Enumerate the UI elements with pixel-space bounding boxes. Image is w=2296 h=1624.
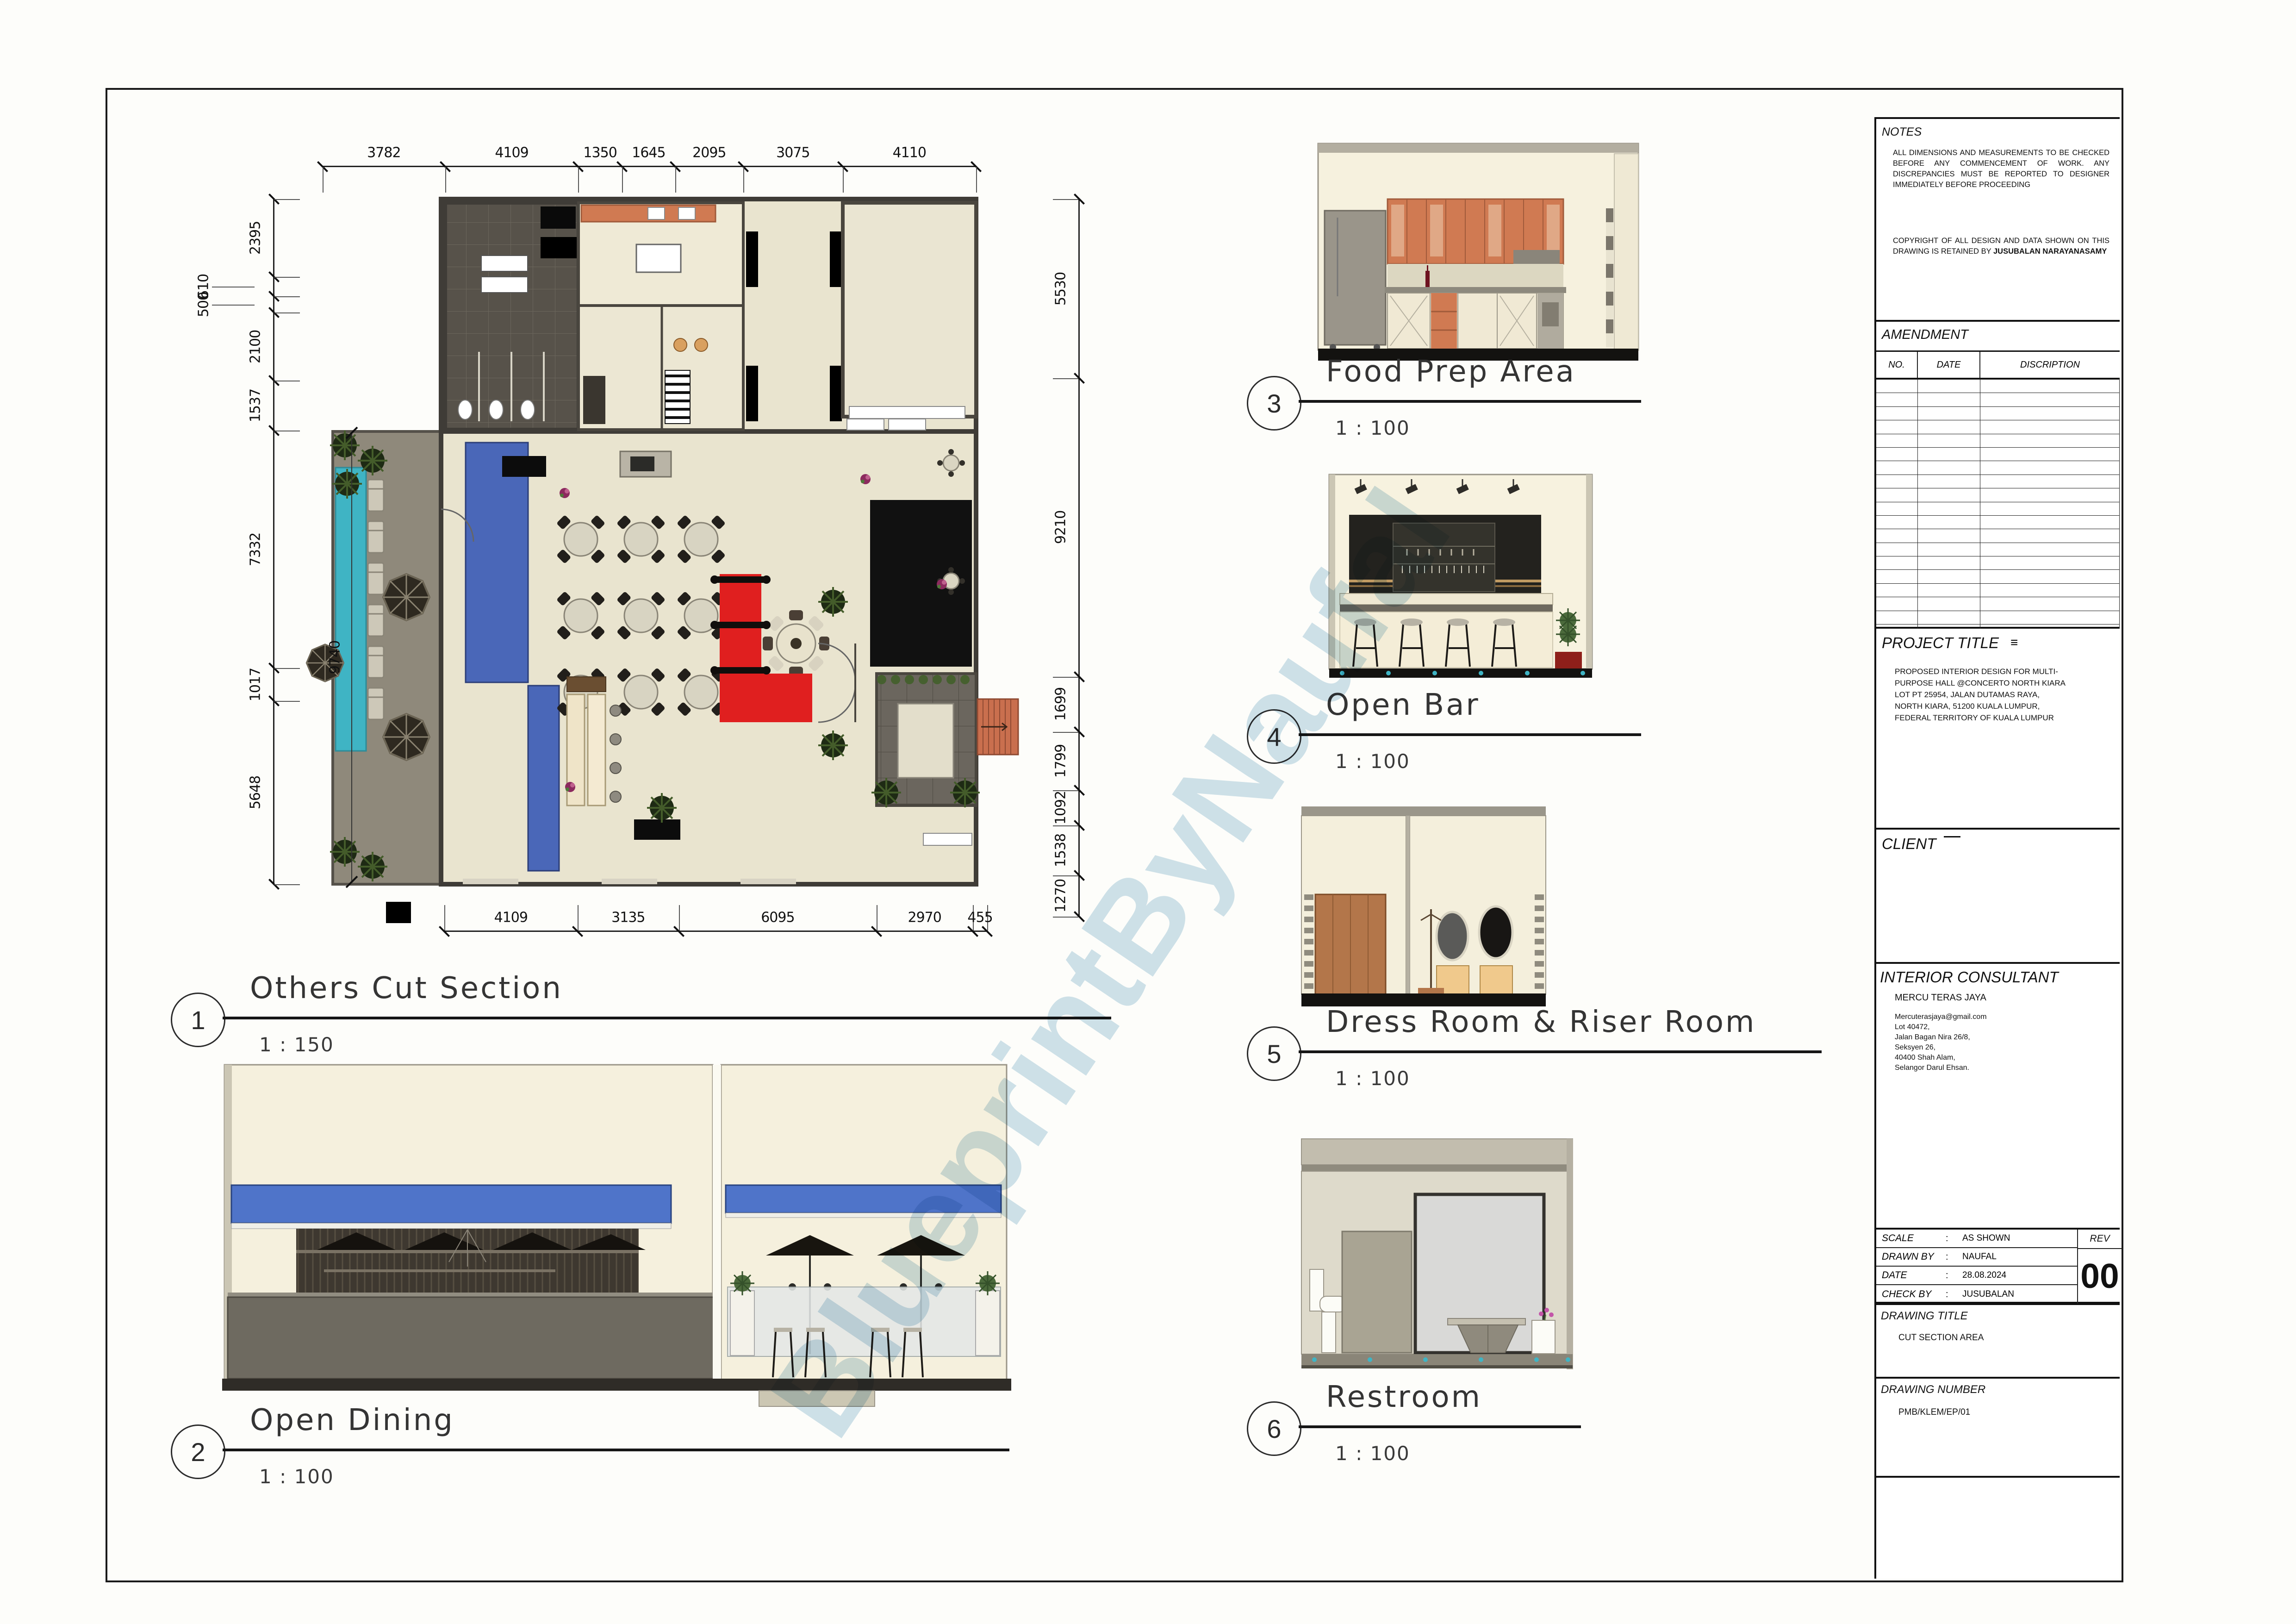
amendment-empty-rows [1876,379,2120,637]
dim-graphic [274,277,300,278]
dim-label: 9210 [1053,511,1069,544]
meta-colon: : [1946,1270,1962,1281]
client-header: CLIENT [1882,835,1936,853]
rev-cell: REV 00 [2077,1230,2122,1304]
terrace-dim-label: 9740 [327,641,343,674]
dim-graphic [679,905,680,931]
drawing-2-number-text: 2 [191,1437,205,1467]
consultant-section: INTERIOR CONSULTANT MERCU TERAS JAYA Mer… [1874,964,2120,1230]
rev-label: REV [2078,1230,2122,1249]
floor-plan [306,199,1018,923]
client-section: CLIENT [1874,830,2120,964]
dim-graphic [622,167,623,193]
dim-label: 1538 [1053,834,1069,867]
dim-graphic [877,905,877,931]
drawing-2-title: Open Dining [250,1403,454,1437]
drawing-sheet: { "palette": { "carpet_blue": "#4a67b8",… [0,0,2296,1624]
drawing-6-underline [1299,1425,1581,1428]
dim-graphic [323,167,324,193]
consultant-header: INTERIOR CONSULTANT [1880,968,2059,986]
elevation-food-prep [1318,144,1638,361]
dim-label: 1645 [632,145,665,161]
drawing-number-value: PMB/KLEM/EP/01 [1898,1407,1970,1418]
drawing-1-underline [223,1017,1111,1019]
amendment-table: NO. DATE DISCRIPTION [1876,350,2120,627]
project-title-section: PROJECT TITLE ≡ PROPOSED INTERIOR DESIGN… [1874,629,2120,830]
drawing-5-scale: 1 : 100 [1335,1067,1410,1090]
dim-graphic [843,167,844,193]
dim-graphic [1053,199,1078,200]
client-header-dash [1944,836,1960,837]
dim-graphic [976,167,977,193]
drawing-4-number: 4 [1247,709,1301,764]
dim-graphic [743,167,744,193]
meta-colon: : [1946,1289,1962,1300]
dim-label: 2395 [248,221,264,255]
meta-row-date: DATE:28.08.2024 [1876,1267,2077,1285]
dim-graphic [274,381,300,381]
dim-label: 3782 [367,145,400,161]
dim-graphic [578,167,579,193]
drawing-1-title: Others Cut Section [250,971,563,1006]
amendment-row [1876,597,2120,610]
dim-label: 1092 [1053,791,1069,824]
amendment-row [1876,406,2120,420]
meta-value-scale: AS SHOWN [1962,1233,2077,1243]
dim-label: 3135 [611,910,645,926]
drawing-3-title: Food Prep Area [1326,355,1576,389]
dim-label: 5648 [248,776,264,809]
drawing-3-number: 3 [1247,376,1301,431]
dim-label: 2100 [248,330,264,363]
dim-label: 1699 [1053,687,1069,721]
drawing-title-section: DRAWING TITLE CUT SECTION AREA [1874,1304,2120,1379]
dim-graphic [578,905,579,931]
project-title-header: PROJECT TITLE [1882,634,1999,652]
notes-paragraph-2: COPYRIGHT OF ALL DESIGN AND DATA SHOWN O… [1893,236,2109,257]
dim-graphic [274,431,300,431]
drawing-6-scale: 1 : 100 [1335,1442,1410,1465]
dim-graphic [675,167,676,193]
titleblock-footer-space [1874,1478,2120,1579]
elevation-restroom [1301,1139,1573,1369]
dim-label: 1017 [248,668,264,701]
consultant-name: MERCU TERAS JAYA [1895,993,1986,1003]
meta-label-drawn-by: DRAWN BY [1876,1251,1946,1262]
meta-colon: : [1946,1252,1962,1262]
drawing-3-scale: 1 : 100 [1335,417,1410,439]
dim-graphic [274,668,300,669]
dim-graphic [274,199,300,200]
notes-header: NOTES [1882,125,1922,139]
dim-label: 2095 [692,145,726,161]
drawing-5-underline [1299,1050,1822,1053]
notes-paragraph-1: ALL DIMENSIONS AND MEASUREMENTS TO BE CH… [1893,148,2109,190]
drawing-5-title: Dress Room & Riser Room [1326,1005,1756,1039]
amendment-row [1876,611,2120,624]
drawing-3-underline [1299,400,1641,403]
drawing-6-number-text: 6 [1267,1414,1281,1444]
amendment-row [1876,529,2120,542]
amendment-row [1876,461,2120,474]
dim-label: 1537 [248,389,264,422]
amendment-row [1876,393,2120,406]
elevation-dress-riser [1301,806,1546,1006]
meta-rows: SCALE:AS SHOWN DRAWN BY:NAUFAL DATE:28.0… [1876,1230,2077,1304]
dim-graphic [444,905,445,931]
dim-graphic [212,287,255,287]
drawing-2-number: 2 [171,1424,225,1479]
dim-label: 6095 [761,910,794,926]
dim-graphic [1078,199,1080,917]
amendment-row [1876,502,2120,515]
amendment-row [1876,420,2120,433]
dim-graphic [1053,677,1078,678]
drawing-title-value: CUT SECTION AREA [1898,1333,1984,1343]
amendment-row [1876,556,2120,569]
dim-label: 500 [196,292,212,317]
meta-row-check-by: CHECK BY:JUSUBALAN [1876,1285,2077,1304]
project-title-header-glyph: ≡ [2010,635,2018,650]
drawing-4-scale: 1 : 100 [1335,750,1410,773]
dim-label: 1270 [1053,879,1069,912]
amendment-row [1876,569,2120,583]
amendment-row [1876,488,2120,501]
amendment-row [1876,434,2120,447]
dim-graphic [274,884,300,885]
elevation-open-dining [222,1065,1011,1406]
drawing-1-scale: 1 : 150 [259,1033,334,1056]
drawing-4-number-text: 4 [1267,722,1281,752]
dim-graphic [274,296,300,297]
dim-graphic [1053,917,1078,918]
dim-graphic [274,701,300,702]
amendment-row [1876,447,2120,461]
drawing-number-header: DRAWING NUMBER [1881,1383,1985,1396]
dim-graphic [1053,378,1078,379]
notes-section: NOTES ALL DIMENSIONS AND MEASUREMENTS TO… [1874,117,2120,322]
drawing-2-underline [223,1449,1009,1451]
drawing-4-underline [1299,733,1641,736]
dim-label: 1799 [1053,744,1069,778]
amendment-section: AMENDMENT NO. DATE DISCRIPTION [1874,322,2120,629]
amendment-col-no: NO. [1876,352,1918,378]
elevation-open-bar [1329,475,1592,678]
drawing-3-number-text: 3 [1267,388,1281,418]
consultant-address: Mercuterasjaya@gmail.com Lot 40472, Jala… [1895,1012,1987,1073]
dim-graphic [212,305,255,306]
meta-label-date: DATE [1876,1270,1946,1281]
meta-label-check-by: CHECK BY [1876,1289,1946,1300]
meta-value-date: 28.08.2024 [1962,1270,2077,1280]
meta-colon: : [1946,1233,1962,1244]
dim-label: 3075 [776,145,809,161]
drawing-number-section: DRAWING NUMBER PMB/KLEM/EP/01 [1874,1379,2120,1478]
rev-value: 00 [2078,1249,2122,1303]
drawing-5-number: 5 [1247,1026,1301,1081]
amendment-row [1876,515,2120,529]
dim-graphic [1053,825,1078,826]
meta-row-scale: SCALE:AS SHOWN [1876,1230,2077,1248]
dim-label: 2970 [908,910,941,926]
drawing-5-number-text: 5 [1267,1039,1281,1069]
dim-graphic [273,199,274,884]
amendment-row [1876,475,2120,488]
meta-label-scale: SCALE [1876,1233,1946,1244]
dim-graphic [323,166,976,167]
dim-label: 4109 [495,145,528,161]
dim-label: 455 [967,910,992,926]
meta-row-drawn-by: DRAWN BY:NAUFAL [1876,1248,2077,1267]
dim-label: 5530 [1053,272,1069,305]
drawing-1-number: 1 [171,993,225,1047]
drawing-1-number-text: 1 [191,1005,205,1035]
dim-graphic [1053,732,1078,733]
dim-graphic [444,931,987,932]
project-title-text: PROPOSED INTERIOR DESIGN FOR MULTI- PURP… [1895,666,2066,724]
dim-label: 7332 [248,532,264,566]
amendment-row [1876,583,2120,597]
meta-section: SCALE:AS SHOWN DRAWN BY:NAUFAL DATE:28.0… [1874,1230,2120,1304]
dim-label: 1350 [583,145,616,161]
drawing-title-header: DRAWING TITLE [1881,1310,1968,1323]
drawing-2-scale: 1 : 100 [259,1465,334,1488]
meta-value-drawn-by: NAUFAL [1962,1252,2077,1262]
drawing-6-title: Restroom [1326,1380,1482,1414]
meta-value-check-by: JUSUBALAN [1962,1289,2077,1299]
amendment-row [1876,543,2120,556]
notes-copyright-name: JUSUBALAN NARAYANASAMY [1993,247,2107,256]
dim-graphic [445,167,446,193]
amendment-row [1876,379,2120,393]
dim-label: 4110 [893,145,926,161]
drawing-4-title: Open Bar [1326,688,1480,722]
amendment-col-date: DATE [1918,352,1980,378]
dim-graphic [1053,875,1078,876]
dim-graphic [274,312,300,313]
drawing-6-number: 6 [1247,1401,1301,1456]
amendment-col-discription: DISCRIPTION [1980,352,2120,378]
amendment-table-header: NO. DATE DISCRIPTION [1876,352,2120,379]
dim-label: 4109 [494,910,528,926]
amendment-header: AMENDMENT [1882,327,1968,343]
